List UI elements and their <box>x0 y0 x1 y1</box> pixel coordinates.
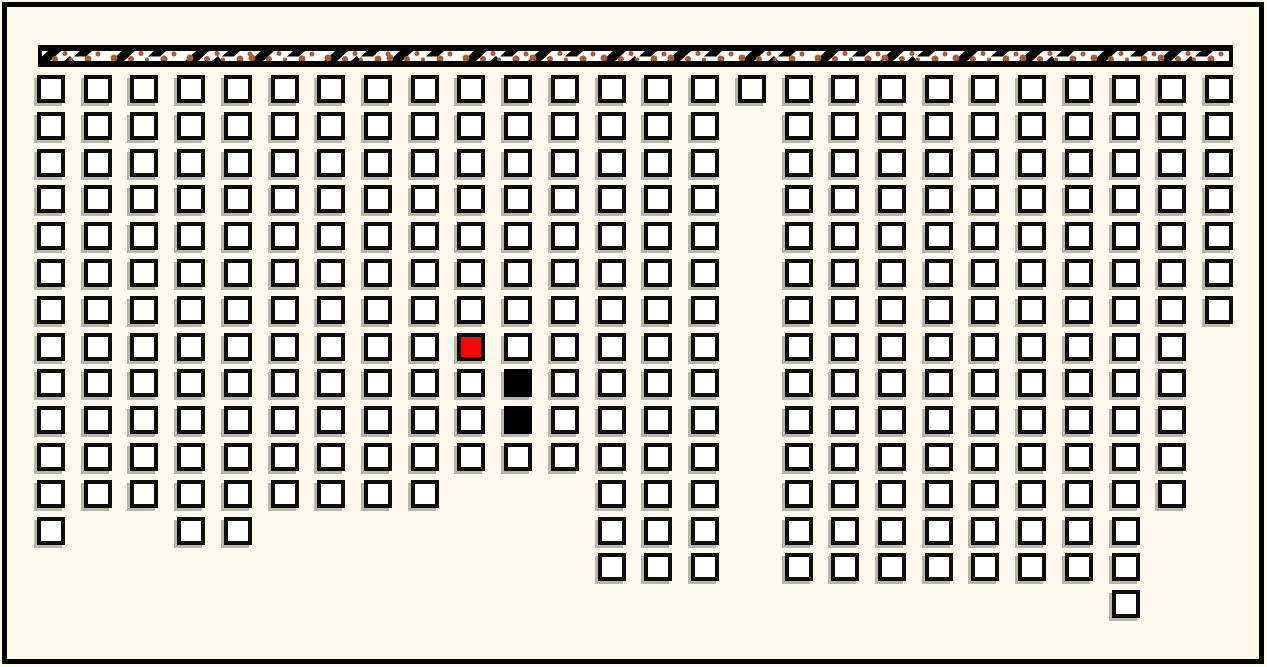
seat[interactable] <box>177 406 205 434</box>
seat[interactable] <box>598 259 626 287</box>
seat[interactable] <box>457 369 485 397</box>
seat[interactable] <box>831 480 859 508</box>
seat[interactable] <box>364 406 392 434</box>
seat[interactable] <box>831 553 859 581</box>
seat[interactable] <box>971 75 999 103</box>
seat[interactable] <box>1112 296 1140 324</box>
seat[interactable] <box>317 369 345 397</box>
seat[interactable] <box>364 296 392 324</box>
seat[interactable] <box>84 75 112 103</box>
seat[interactable] <box>271 259 299 287</box>
seat[interactable] <box>1065 333 1093 361</box>
seat[interactable] <box>224 259 252 287</box>
seat[interactable] <box>504 259 532 287</box>
seat[interactable] <box>878 443 906 471</box>
seat[interactable] <box>644 480 672 508</box>
seat[interactable] <box>411 112 439 140</box>
seat[interactable] <box>785 259 813 287</box>
seat[interactable] <box>364 333 392 361</box>
seat[interactable] <box>457 112 485 140</box>
seat[interactable] <box>1158 112 1186 140</box>
seat[interactable] <box>1112 259 1140 287</box>
seat[interactable] <box>925 112 953 140</box>
seat[interactable] <box>411 75 439 103</box>
seat[interactable] <box>84 333 112 361</box>
seat[interactable] <box>1018 75 1046 103</box>
seat[interactable] <box>785 443 813 471</box>
seat[interactable] <box>785 185 813 213</box>
seat[interactable] <box>971 296 999 324</box>
seat[interactable] <box>1158 75 1186 103</box>
seat[interactable] <box>785 75 813 103</box>
seat[interactable] <box>1158 296 1186 324</box>
seat[interactable] <box>411 259 439 287</box>
seat[interactable] <box>1112 480 1140 508</box>
seat[interactable] <box>177 112 205 140</box>
seat[interactable] <box>1065 112 1093 140</box>
seat[interactable] <box>598 112 626 140</box>
seat[interactable] <box>878 406 906 434</box>
seat[interactable] <box>925 149 953 177</box>
seat[interactable] <box>457 222 485 250</box>
seat[interactable] <box>317 112 345 140</box>
seat[interactable] <box>130 296 158 324</box>
seat[interactable] <box>925 406 953 434</box>
seat[interactable] <box>271 406 299 434</box>
seat[interactable] <box>177 185 205 213</box>
seat[interactable] <box>364 75 392 103</box>
seat[interactable] <box>878 75 906 103</box>
seat[interactable] <box>1065 406 1093 434</box>
seat[interactable] <box>831 75 859 103</box>
seat[interactable] <box>831 222 859 250</box>
seat[interactable] <box>644 112 672 140</box>
seat[interactable] <box>971 517 999 545</box>
seat[interactable] <box>598 222 626 250</box>
seat[interactable] <box>317 222 345 250</box>
seat[interactable] <box>644 406 672 434</box>
seat[interactable] <box>84 296 112 324</box>
seat[interactable] <box>1065 443 1093 471</box>
seat[interactable] <box>1112 185 1140 213</box>
seat[interactable] <box>364 149 392 177</box>
seat[interactable] <box>411 369 439 397</box>
seat[interactable] <box>37 443 65 471</box>
seat[interactable] <box>84 480 112 508</box>
seat[interactable] <box>878 517 906 545</box>
seat[interactable] <box>644 296 672 324</box>
seat[interactable] <box>37 406 65 434</box>
seat[interactable] <box>130 443 158 471</box>
seat[interactable] <box>411 296 439 324</box>
seat[interactable] <box>551 259 579 287</box>
seat[interactable] <box>925 369 953 397</box>
seat[interactable] <box>878 369 906 397</box>
seat[interactable] <box>1065 149 1093 177</box>
seat[interactable] <box>691 296 719 324</box>
seat[interactable] <box>84 406 112 434</box>
seat[interactable] <box>364 222 392 250</box>
seat[interactable] <box>364 185 392 213</box>
seat[interactable] <box>691 259 719 287</box>
seat[interactable] <box>598 517 626 545</box>
seat[interactable] <box>1018 259 1046 287</box>
seat[interactable] <box>691 333 719 361</box>
seat[interactable] <box>1018 369 1046 397</box>
seat[interactable] <box>130 406 158 434</box>
seat[interactable] <box>971 222 999 250</box>
seat[interactable] <box>551 112 579 140</box>
seat[interactable] <box>644 553 672 581</box>
seat[interactable] <box>878 149 906 177</box>
seat[interactable] <box>1158 222 1186 250</box>
seat[interactable] <box>130 75 158 103</box>
seat[interactable] <box>1065 296 1093 324</box>
seat[interactable] <box>1158 480 1186 508</box>
seat[interactable] <box>37 75 65 103</box>
seat[interactable] <box>504 149 532 177</box>
seat[interactable] <box>177 369 205 397</box>
seat[interactable] <box>644 517 672 545</box>
seat[interactable] <box>504 222 532 250</box>
seat[interactable] <box>925 553 953 581</box>
seat[interactable] <box>598 480 626 508</box>
seat[interactable] <box>130 259 158 287</box>
seat[interactable] <box>224 222 252 250</box>
seat[interactable] <box>551 443 579 471</box>
seat[interactable] <box>37 222 65 250</box>
seat[interactable] <box>457 185 485 213</box>
seat[interactable] <box>224 296 252 324</box>
seat[interactable] <box>271 75 299 103</box>
seat[interactable] <box>1112 222 1140 250</box>
seat[interactable] <box>317 296 345 324</box>
seat[interactable] <box>504 443 532 471</box>
seat[interactable] <box>551 296 579 324</box>
seat[interactable] <box>1112 406 1140 434</box>
seat[interactable] <box>925 443 953 471</box>
seat[interactable] <box>130 369 158 397</box>
seat[interactable] <box>738 75 766 103</box>
seat[interactable] <box>177 259 205 287</box>
seat[interactable] <box>317 185 345 213</box>
seat[interactable] <box>831 443 859 471</box>
seat[interactable] <box>1205 259 1233 287</box>
seat[interactable] <box>598 553 626 581</box>
seat[interactable] <box>878 553 906 581</box>
seat[interactable] <box>878 333 906 361</box>
seat[interactable] <box>130 333 158 361</box>
seat[interactable] <box>925 259 953 287</box>
seat[interactable] <box>551 369 579 397</box>
seat[interactable] <box>691 443 719 471</box>
seat[interactable] <box>1112 517 1140 545</box>
seat[interactable] <box>37 296 65 324</box>
seat[interactable] <box>785 296 813 324</box>
seat[interactable] <box>691 517 719 545</box>
seat[interactable] <box>271 443 299 471</box>
seat[interactable] <box>364 259 392 287</box>
seat[interactable] <box>84 112 112 140</box>
seat[interactable] <box>598 369 626 397</box>
seat[interactable] <box>925 480 953 508</box>
seat[interactable] <box>457 259 485 287</box>
seat[interactable] <box>1112 149 1140 177</box>
seat[interactable] <box>1018 112 1046 140</box>
seat[interactable] <box>598 149 626 177</box>
seat[interactable] <box>878 259 906 287</box>
seat[interactable] <box>831 149 859 177</box>
seat[interactable] <box>1018 553 1046 581</box>
seat[interactable] <box>691 480 719 508</box>
seat[interactable] <box>551 222 579 250</box>
seat[interactable] <box>177 296 205 324</box>
seat[interactable] <box>130 222 158 250</box>
seat[interactable] <box>271 222 299 250</box>
seat[interactable] <box>785 369 813 397</box>
seat[interactable] <box>691 222 719 250</box>
seat[interactable] <box>971 112 999 140</box>
seat[interactable] <box>1112 369 1140 397</box>
seat[interactable] <box>1158 443 1186 471</box>
seat[interactable] <box>831 259 859 287</box>
seat[interactable] <box>971 443 999 471</box>
seat[interactable] <box>1112 553 1140 581</box>
seat[interactable] <box>691 185 719 213</box>
seat[interactable] <box>457 443 485 471</box>
seat[interactable] <box>831 185 859 213</box>
seat[interactable] <box>411 406 439 434</box>
seat[interactable] <box>971 553 999 581</box>
seat[interactable] <box>37 369 65 397</box>
seat[interactable] <box>130 480 158 508</box>
seat[interactable] <box>598 185 626 213</box>
seat[interactable] <box>317 333 345 361</box>
seat[interactable] <box>457 296 485 324</box>
seat[interactable] <box>551 406 579 434</box>
seat[interactable] <box>691 406 719 434</box>
seat[interactable] <box>785 333 813 361</box>
seat[interactable] <box>84 259 112 287</box>
seat[interactable] <box>971 259 999 287</box>
seat[interactable] <box>271 149 299 177</box>
seat[interactable] <box>1065 369 1093 397</box>
seat[interactable] <box>551 149 579 177</box>
seat[interactable] <box>785 112 813 140</box>
seat[interactable] <box>317 406 345 434</box>
seat[interactable] <box>925 185 953 213</box>
seat[interactable] <box>1205 112 1233 140</box>
seat[interactable] <box>1205 222 1233 250</box>
seat[interactable] <box>831 112 859 140</box>
seat[interactable] <box>224 406 252 434</box>
seat[interactable] <box>411 149 439 177</box>
seat[interactable] <box>1205 185 1233 213</box>
seat[interactable] <box>598 333 626 361</box>
seat[interactable] <box>1018 185 1046 213</box>
seat[interactable] <box>224 112 252 140</box>
seat[interactable] <box>1158 333 1186 361</box>
seat[interactable] <box>598 443 626 471</box>
seat-selected[interactable] <box>457 333 485 361</box>
seat[interactable] <box>785 517 813 545</box>
seat[interactable] <box>37 112 65 140</box>
seat[interactable] <box>785 149 813 177</box>
seat[interactable] <box>1112 443 1140 471</box>
seat[interactable] <box>411 443 439 471</box>
seat[interactable] <box>831 369 859 397</box>
seat[interactable] <box>84 185 112 213</box>
seat[interactable] <box>177 443 205 471</box>
seat[interactable] <box>1065 517 1093 545</box>
seat[interactable] <box>551 185 579 213</box>
seat[interactable] <box>785 480 813 508</box>
seat[interactable] <box>925 222 953 250</box>
seat[interactable] <box>1018 443 1046 471</box>
seat[interactable] <box>1018 517 1046 545</box>
seat[interactable] <box>691 369 719 397</box>
seat[interactable] <box>224 443 252 471</box>
seat[interactable] <box>1065 222 1093 250</box>
seat[interactable] <box>691 112 719 140</box>
seat[interactable] <box>177 149 205 177</box>
seat[interactable] <box>971 369 999 397</box>
seat[interactable] <box>224 369 252 397</box>
seat[interactable] <box>37 480 65 508</box>
seat[interactable] <box>84 369 112 397</box>
seat[interactable] <box>317 149 345 177</box>
seat[interactable] <box>598 296 626 324</box>
seat[interactable] <box>785 553 813 581</box>
seat[interactable] <box>878 112 906 140</box>
seat[interactable] <box>1065 185 1093 213</box>
seat[interactable] <box>878 222 906 250</box>
seat[interactable] <box>785 406 813 434</box>
seat[interactable] <box>1158 369 1186 397</box>
seat[interactable] <box>224 480 252 508</box>
seat[interactable] <box>224 149 252 177</box>
seat[interactable] <box>878 296 906 324</box>
seat[interactable] <box>271 480 299 508</box>
seat[interactable] <box>878 185 906 213</box>
seat[interactable] <box>551 75 579 103</box>
seat[interactable] <box>84 443 112 471</box>
seat[interactable] <box>1018 480 1046 508</box>
seat[interactable] <box>1018 149 1046 177</box>
seat[interactable] <box>644 369 672 397</box>
seat[interactable] <box>177 222 205 250</box>
seat[interactable] <box>37 333 65 361</box>
seat[interactable] <box>271 296 299 324</box>
seat[interactable] <box>411 333 439 361</box>
seat[interactable] <box>785 222 813 250</box>
seat[interactable] <box>177 75 205 103</box>
seat[interactable] <box>271 333 299 361</box>
seat[interactable] <box>1112 590 1140 618</box>
seat[interactable] <box>598 406 626 434</box>
seat[interactable] <box>971 480 999 508</box>
seat[interactable] <box>644 333 672 361</box>
seat[interactable] <box>1018 222 1046 250</box>
seat[interactable] <box>84 222 112 250</box>
seat[interactable] <box>411 185 439 213</box>
seat[interactable] <box>224 517 252 545</box>
seat[interactable] <box>1112 112 1140 140</box>
seat[interactable] <box>1112 75 1140 103</box>
seat[interactable] <box>1205 296 1233 324</box>
seat[interactable] <box>831 406 859 434</box>
seat[interactable] <box>457 75 485 103</box>
seat[interactable] <box>1158 259 1186 287</box>
seat[interactable] <box>598 75 626 103</box>
seat[interactable] <box>691 75 719 103</box>
seat[interactable] <box>1018 333 1046 361</box>
seat[interactable] <box>130 149 158 177</box>
seat[interactable] <box>504 333 532 361</box>
seat[interactable] <box>1158 149 1186 177</box>
seat[interactable] <box>411 480 439 508</box>
seat[interactable] <box>504 185 532 213</box>
seat[interactable] <box>925 75 953 103</box>
seat[interactable] <box>971 406 999 434</box>
seat[interactable] <box>317 75 345 103</box>
seat[interactable] <box>457 406 485 434</box>
seat[interactable] <box>37 259 65 287</box>
seat[interactable] <box>971 149 999 177</box>
seat[interactable] <box>504 112 532 140</box>
seat[interactable] <box>224 75 252 103</box>
seat[interactable] <box>644 75 672 103</box>
seat[interactable] <box>1112 333 1140 361</box>
seat[interactable] <box>1158 185 1186 213</box>
seat[interactable] <box>831 296 859 324</box>
seat[interactable] <box>1018 406 1046 434</box>
seat[interactable] <box>1065 259 1093 287</box>
seat[interactable] <box>177 480 205 508</box>
seat[interactable] <box>364 443 392 471</box>
seat[interactable] <box>551 333 579 361</box>
seat[interactable] <box>925 296 953 324</box>
seat[interactable] <box>971 333 999 361</box>
seat[interactable] <box>224 185 252 213</box>
seat[interactable] <box>878 480 906 508</box>
seat[interactable] <box>644 185 672 213</box>
seat[interactable] <box>130 185 158 213</box>
seat[interactable] <box>925 333 953 361</box>
seat[interactable] <box>831 517 859 545</box>
seat[interactable] <box>364 112 392 140</box>
seat[interactable] <box>691 149 719 177</box>
seat[interactable] <box>411 222 439 250</box>
seat[interactable] <box>1205 149 1233 177</box>
seat[interactable] <box>37 149 65 177</box>
seat[interactable] <box>1158 406 1186 434</box>
seat[interactable] <box>1205 75 1233 103</box>
seat[interactable] <box>317 259 345 287</box>
seat[interactable] <box>364 480 392 508</box>
seat[interactable] <box>1065 75 1093 103</box>
seat[interactable] <box>317 480 345 508</box>
seat[interactable] <box>271 369 299 397</box>
seat[interactable] <box>691 553 719 581</box>
seat[interactable] <box>1065 553 1093 581</box>
seat[interactable] <box>271 185 299 213</box>
seat[interactable] <box>177 517 205 545</box>
seat[interactable] <box>504 75 532 103</box>
seat[interactable] <box>644 222 672 250</box>
seat[interactable] <box>644 259 672 287</box>
seat[interactable] <box>1018 296 1046 324</box>
